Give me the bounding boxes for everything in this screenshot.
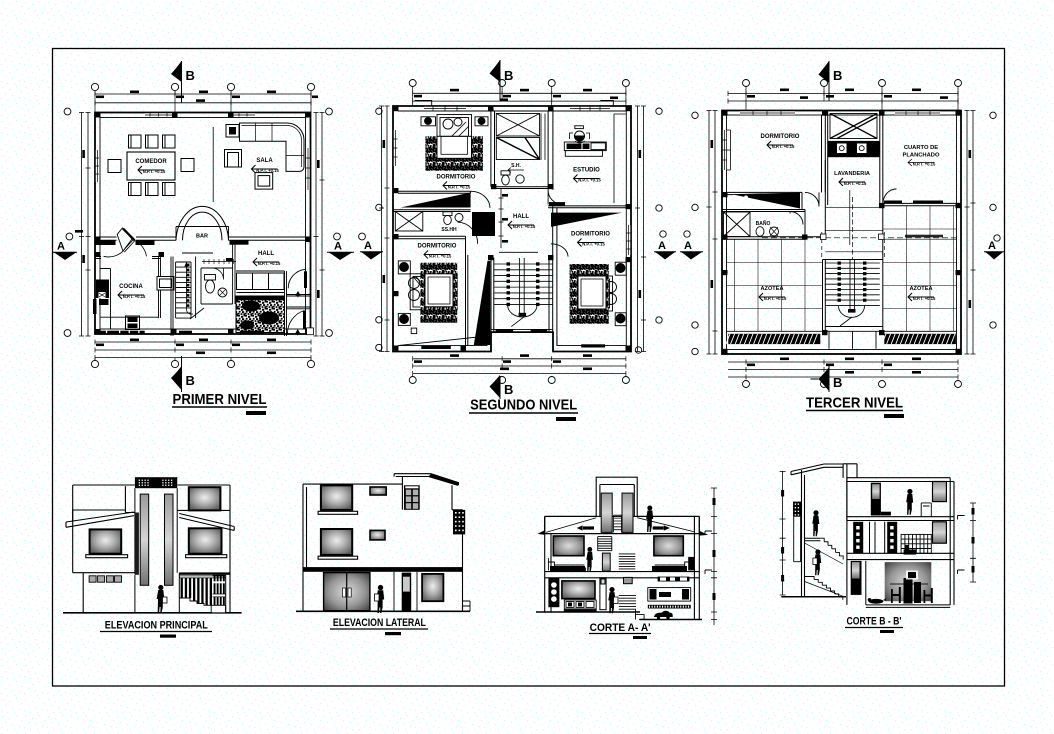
svg-text:SEGUNDO NIVEL: SEGUNDO NIVEL bbox=[470, 397, 577, 414]
svg-text:TERCER NIVEL: TERCER NIVEL bbox=[806, 395, 903, 412]
svg-text:A: A bbox=[658, 240, 666, 252]
svg-text:COCINA: COCINA bbox=[119, 284, 143, 290]
svg-text:ESTUDIO: ESTUDIO bbox=[573, 168, 600, 174]
svg-text:B: B bbox=[186, 373, 195, 388]
svg-text:A: A bbox=[334, 241, 342, 253]
svg-text:SALA: SALA bbox=[256, 158, 273, 164]
svg-text:N.P.T. +0.15: N.P.T. +0.15 bbox=[772, 144, 795, 149]
svg-text:PLANCHADO: PLANCHADO bbox=[902, 153, 940, 159]
svg-text:N.P.T. +0.15: N.P.T. +0.15 bbox=[429, 254, 452, 259]
svg-text:N.P.T. +0.15: N.P.T. +0.15 bbox=[258, 261, 281, 266]
svg-text:N.P.T. +0.15: N.P.T. +0.15 bbox=[143, 169, 166, 174]
svg-text:AZOTEA: AZOTEA bbox=[761, 286, 784, 292]
svg-text:N.P.T. +0.15: N.P.T. +0.15 bbox=[844, 181, 867, 186]
svg-text:HALL: HALL bbox=[513, 214, 529, 220]
svg-text:HALL: HALL bbox=[258, 251, 274, 257]
svg-text:N.P.T. +0.15: N.P.T. +0.15 bbox=[913, 296, 936, 301]
svg-text:A: A bbox=[364, 240, 372, 252]
svg-text:B: B bbox=[833, 375, 842, 390]
svg-text:CUARTO DE: CUARTO DE bbox=[904, 145, 938, 151]
svg-text:N.P.T. +0.15: N.P.T. +0.15 bbox=[913, 162, 936, 167]
svg-text:ELEVACION PRINCIPAL: ELEVACION PRINCIPAL bbox=[105, 620, 208, 632]
svg-text:SS.HH: SS.HH bbox=[441, 227, 457, 233]
svg-text:N.P.T. +0.15: N.P.T. +0.15 bbox=[123, 294, 146, 299]
svg-text:N.P.T. +0.15: N.P.T. +0.15 bbox=[764, 296, 787, 301]
svg-text:A: A bbox=[684, 240, 692, 252]
svg-text:A: A bbox=[57, 241, 65, 253]
svg-text:N.P.T. +0.15: N.P.T. +0.15 bbox=[578, 178, 601, 183]
svg-text:DORMITORIO: DORMITORIO bbox=[761, 134, 800, 140]
svg-text:B: B bbox=[504, 68, 513, 83]
svg-text:AZOTEA: AZOTEA bbox=[910, 286, 933, 292]
svg-text:N.P.T. +0.15: N.P.T. +0.15 bbox=[513, 224, 536, 229]
svg-text:A: A bbox=[988, 240, 996, 252]
svg-text:BAR: BAR bbox=[196, 234, 208, 240]
svg-text:BAÑO: BAÑO bbox=[756, 220, 771, 227]
svg-text:CORTE B - B': CORTE B - B' bbox=[847, 616, 902, 628]
svg-text:B: B bbox=[186, 68, 195, 83]
svg-text:CORTE A- A': CORTE A- A' bbox=[590, 622, 651, 634]
svg-text:N.P.T. +0.15: N.P.T. +0.15 bbox=[256, 168, 279, 173]
svg-text:DORMITORIO: DORMITORIO bbox=[418, 244, 457, 250]
svg-text:DORMITORIO: DORMITORIO bbox=[571, 232, 610, 238]
svg-text:LAVANDERIA: LAVANDERIA bbox=[834, 171, 870, 177]
svg-text:B: B bbox=[833, 68, 842, 83]
svg-text:COMEDOR: COMEDOR bbox=[135, 159, 167, 165]
svg-text:N.P.T. +0.15: N.P.T. +0.15 bbox=[582, 242, 605, 247]
svg-text:ELEVACION LATERAL: ELEVACION LATERAL bbox=[333, 617, 426, 629]
svg-text:DORMITORIO: DORMITORIO bbox=[437, 175, 476, 181]
svg-text:S.H.: S.H. bbox=[511, 163, 521, 169]
svg-text:B: B bbox=[504, 382, 513, 397]
svg-text:N.P.T. +0.15: N.P.T. +0.15 bbox=[448, 185, 471, 190]
svg-text:PRIMER NIVEL: PRIMER NIVEL bbox=[173, 391, 267, 408]
